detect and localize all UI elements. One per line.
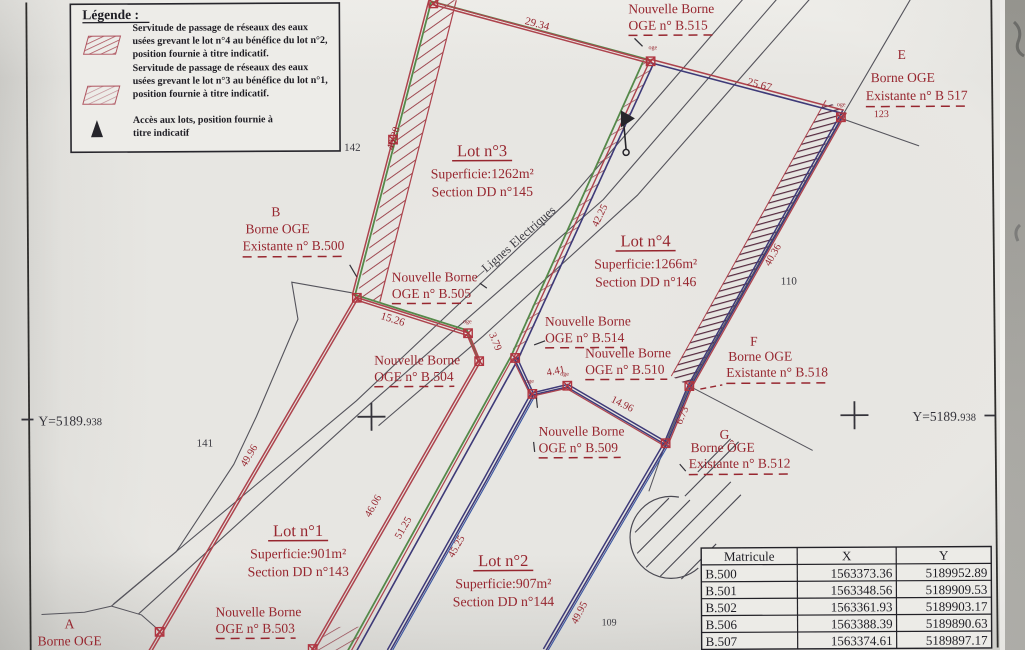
svg-text:5189897.17: 5189897.17 xyxy=(926,633,988,648)
svg-text:Lot n°3: Lot n°3 xyxy=(457,141,507,160)
svg-text:123: 123 xyxy=(874,109,889,120)
svg-text:OGE n° B.509: OGE n° B.509 xyxy=(539,440,619,455)
svg-text:Nouvelle Borne: Nouvelle Borne xyxy=(215,604,301,619)
svg-text:1563361.93: 1563361.93 xyxy=(831,599,893,614)
svg-text:109: 109 xyxy=(602,617,617,628)
svg-text:Existante n° B.500: Existante n° B.500 xyxy=(243,238,345,254)
svg-text:1563348.56: 1563348.56 xyxy=(831,582,893,597)
svg-text:1563388.39: 1563388.39 xyxy=(831,616,893,631)
svg-text:Superficie:1266m²: Superficie:1266m² xyxy=(594,256,697,272)
svg-text:oge: oge xyxy=(463,319,472,325)
svg-text:OGE n° B.505: OGE n° B.505 xyxy=(392,286,472,301)
svg-text:A: A xyxy=(65,616,75,631)
svg-text:titre indicatif: titre indicatif xyxy=(133,128,190,139)
svg-text:110: 110 xyxy=(781,276,798,288)
svg-text:Section DD n°145: Section DD n°145 xyxy=(432,184,533,200)
svg-text:OGE n° B.504: OGE n° B.504 xyxy=(374,369,454,384)
svg-text:Nouvelle Borne: Nouvelle Borne xyxy=(585,345,671,360)
svg-text:1563373.36: 1563373.36 xyxy=(831,565,893,580)
svg-text:5189952.89: 5189952.89 xyxy=(926,565,988,580)
svg-text:Superficie:907m²: Superficie:907m² xyxy=(455,576,551,592)
svg-text:Lot n°4: Lot n°4 xyxy=(620,231,670,250)
svg-text:B.506: B.506 xyxy=(706,617,738,632)
svg-text:Lot n°1: Lot n°1 xyxy=(273,521,323,540)
svg-text:Existante n° B 517: Existante n° B 517 xyxy=(866,88,968,104)
svg-text:Borne OGE: Borne OGE xyxy=(245,221,309,236)
svg-text:oge: oge xyxy=(837,102,846,108)
svg-text:Matricule: Matricule xyxy=(724,549,775,564)
svg-text:OGE n° B.515: OGE n° B.515 xyxy=(628,17,708,32)
svg-text:Servitude de passage de réseau: Servitude de passage de réseaux des eaux xyxy=(132,22,308,34)
svg-text:Superficie:901m²: Superficie:901m² xyxy=(250,546,346,562)
svg-text:B.502: B.502 xyxy=(705,600,737,615)
svg-text:B.501: B.501 xyxy=(705,583,737,598)
svg-text:5189903.17: 5189903.17 xyxy=(926,599,988,614)
svg-text:Superficie:1262m²: Superficie:1262m² xyxy=(431,166,534,182)
svg-text:F: F xyxy=(750,334,758,349)
svg-text:usées grevant le lot n°4 au bé: usées grevant le lot n°4 au bénéfice du … xyxy=(132,35,328,47)
svg-text:Borne OGE: Borne OGE xyxy=(871,70,935,85)
svg-text:X: X xyxy=(842,548,852,563)
svg-text:Borne OGE: Borne OGE xyxy=(38,633,102,648)
svg-text:position fournie à titre indic: position fournie à titre indicatif. xyxy=(133,48,270,60)
svg-text:5189909.53: 5189909.53 xyxy=(926,582,988,597)
svg-text:1563374.61: 1563374.61 xyxy=(831,633,893,648)
svg-text:Légende :: Légende : xyxy=(82,7,139,22)
svg-text:OGE n° B.510: OGE n° B.510 xyxy=(585,362,665,377)
svg-text:B.500: B.500 xyxy=(705,566,737,581)
svg-text:Section DD n°144: Section DD n°144 xyxy=(453,594,554,610)
svg-text:Existante n° B.518: Existante n° B.518 xyxy=(726,364,828,380)
svg-text:usées grevant le lot n°3 au bé: usées grevant le lot n°3 au bénéfice du … xyxy=(133,75,329,87)
svg-text:B: B xyxy=(271,204,280,219)
svg-text:Borne OGE: Borne OGE xyxy=(728,349,792,364)
svg-text:Nouvelle Borne: Nouvelle Borne xyxy=(374,352,460,367)
svg-text:oge: oge xyxy=(525,379,534,385)
svg-text:Nouvelle Borne: Nouvelle Borne xyxy=(545,313,631,328)
svg-text:5189890.63: 5189890.63 xyxy=(926,616,988,631)
svg-text:E: E xyxy=(898,47,906,62)
svg-text:Servitude de passage de réseau: Servitude de passage de réseaux des eaux xyxy=(133,62,309,74)
svg-text:OGE n° B.514: OGE n° B.514 xyxy=(545,330,625,345)
svg-text:position fournie à titre indic: position fournie à titre indicatif. xyxy=(133,88,270,100)
svg-text:B.507: B.507 xyxy=(706,634,738,649)
svg-text:Nouvelle Borne: Nouvelle Borne xyxy=(392,269,478,284)
svg-text:Accès aux lots, position fourn: Accès aux lots, position fournie à xyxy=(133,114,273,126)
svg-text:Nouvelle Borne: Nouvelle Borne xyxy=(539,423,625,438)
svg-text:142: 142 xyxy=(344,142,361,154)
svg-text:Lot n°2: Lot n°2 xyxy=(478,551,528,570)
svg-text:Y: Y xyxy=(939,548,949,563)
svg-text:Existante n° B.512: Existante n° B.512 xyxy=(689,456,791,472)
svg-text:Section DD n°146: Section DD n°146 xyxy=(595,274,696,290)
svg-text:OGE n° B.503: OGE n° B.503 xyxy=(216,621,296,636)
svg-text:Borne ÔGE: Borne ÔGE xyxy=(691,440,755,455)
svg-text:141: 141 xyxy=(197,438,214,450)
svg-text:Section DD n°143: Section DD n°143 xyxy=(248,564,349,580)
svg-text:Nouvelle Borne: Nouvelle Borne xyxy=(628,1,714,16)
svg-text:oge: oge xyxy=(649,45,658,51)
